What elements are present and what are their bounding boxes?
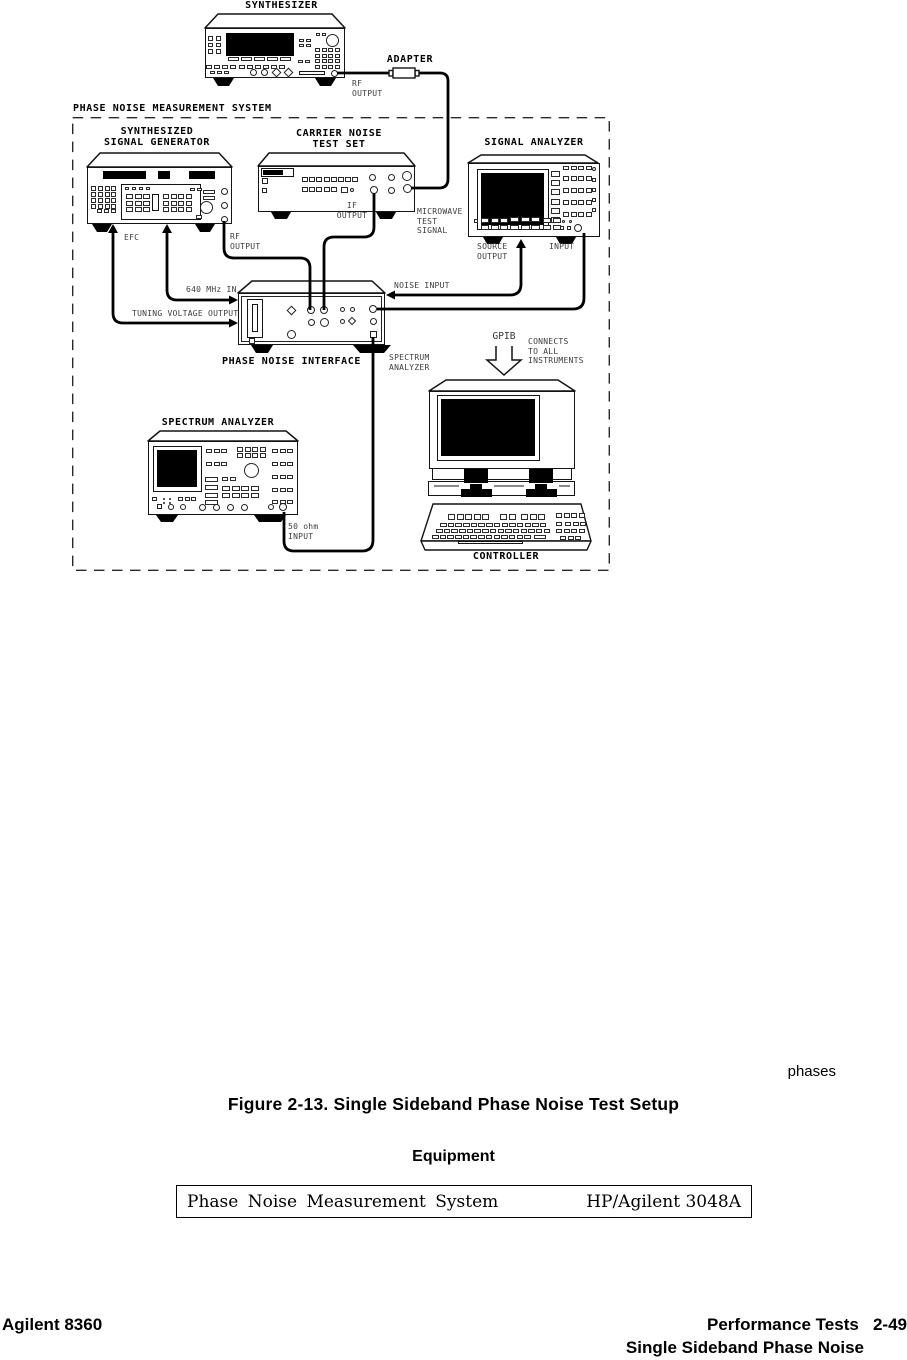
key (260, 447, 266, 452)
connector (169, 502, 171, 504)
key (143, 194, 150, 199)
key (551, 171, 560, 177)
key (486, 523, 493, 527)
key-grid (196, 215, 202, 219)
key (556, 513, 562, 518)
key-grid (126, 194, 150, 212)
connector (168, 504, 174, 510)
key (322, 59, 327, 63)
640mhz-in-label: 640 MHz IN (186, 285, 237, 295)
key (328, 65, 333, 69)
key (178, 497, 183, 501)
synthesizer-title: SYNTHESIZER (205, 0, 358, 11)
key-grid (272, 462, 293, 466)
key (221, 449, 227, 453)
key (205, 485, 218, 490)
connector (320, 306, 328, 314)
key-grid (228, 57, 291, 61)
key (338, 177, 344, 182)
key (280, 449, 286, 453)
key (98, 192, 103, 197)
connector (320, 318, 329, 327)
footer-product: Agilent 8360 (2, 1315, 102, 1335)
key (571, 176, 577, 181)
key (521, 529, 528, 533)
connector (370, 318, 377, 325)
key (322, 48, 327, 52)
key (510, 217, 519, 222)
controller-spacebar (458, 541, 523, 544)
key (436, 529, 443, 533)
connector (200, 201, 213, 214)
key (465, 514, 472, 520)
key (586, 188, 592, 193)
key-grid (208, 36, 221, 54)
system-box-label: PHASE NOISE MEASUREMENT SYSTEM (73, 103, 272, 114)
key (335, 65, 340, 69)
key (146, 187, 150, 190)
key (331, 187, 337, 192)
key (556, 522, 562, 526)
signal-generator-title: SYNTHESIZED SIGNAL GENERATOR (82, 126, 232, 148)
key (563, 200, 569, 205)
key (316, 33, 320, 36)
key (556, 529, 562, 533)
key-grid (190, 188, 202, 191)
key (163, 201, 169, 206)
key (206, 462, 212, 466)
key (208, 43, 213, 48)
key (538, 514, 545, 520)
key (208, 49, 213, 54)
key (563, 212, 569, 217)
key (237, 447, 243, 452)
key (316, 187, 322, 192)
key (91, 192, 96, 197)
if-output-label: IF OUTPUT (322, 201, 382, 220)
key (272, 500, 278, 504)
key (502, 523, 509, 527)
key (98, 186, 103, 191)
key (543, 225, 551, 230)
key (505, 529, 512, 533)
key (309, 187, 315, 192)
connector (569, 220, 572, 223)
connector (574, 224, 582, 232)
key (531, 217, 540, 222)
key (254, 57, 265, 61)
key (280, 57, 291, 61)
key (571, 513, 577, 518)
key (178, 207, 184, 212)
key-grid (206, 462, 227, 466)
key (500, 514, 507, 520)
key (299, 39, 304, 42)
key (216, 43, 221, 48)
key (239, 65, 245, 69)
key (521, 217, 530, 222)
footer-subsection: Single Sideband Phase Noise (626, 1338, 864, 1358)
key-grid (125, 187, 150, 190)
margin-note: phases (788, 1063, 836, 1080)
disk-drive-right (529, 469, 553, 483)
key (126, 194, 133, 199)
key (104, 209, 109, 213)
key (322, 54, 327, 58)
key (287, 488, 293, 492)
key (335, 59, 340, 63)
connector (169, 498, 171, 500)
key (560, 536, 566, 540)
key (315, 48, 320, 52)
equipment-item: Phase Noise Measurement System (187, 1192, 498, 1212)
key (455, 523, 462, 527)
connector (562, 220, 565, 223)
key (252, 447, 258, 452)
key (328, 59, 333, 63)
key (322, 33, 326, 36)
connector (370, 331, 377, 338)
controller-title: CONTROLLER (430, 551, 582, 562)
generator-display-2 (158, 171, 170, 179)
keyboard-keys (500, 514, 516, 520)
key (279, 65, 285, 69)
key-grid (302, 177, 358, 182)
key (444, 529, 451, 533)
key (251, 486, 259, 491)
key (143, 201, 150, 206)
key (111, 192, 116, 197)
keyboard-keys (440, 523, 546, 527)
key (482, 514, 489, 520)
key (135, 201, 142, 206)
key (592, 178, 596, 182)
key-grid (91, 186, 116, 209)
key (135, 194, 142, 199)
key (586, 200, 592, 205)
key (331, 177, 337, 182)
key (178, 201, 184, 206)
key-grid (163, 194, 192, 212)
key (575, 536, 581, 540)
key (315, 65, 320, 69)
key-grid (222, 486, 259, 498)
connector (268, 504, 274, 510)
connector (308, 319, 315, 326)
key (571, 529, 577, 533)
connector (244, 463, 259, 478)
key (592, 208, 596, 212)
key (241, 493, 249, 498)
key (91, 186, 96, 191)
key (287, 475, 293, 479)
key (171, 194, 177, 199)
carrier-display-bar (263, 170, 283, 175)
key (579, 513, 585, 518)
key (571, 166, 577, 170)
key-grid (474, 219, 478, 223)
generator-display-3 (189, 171, 215, 179)
key (126, 207, 133, 212)
key (509, 514, 516, 520)
key (440, 523, 447, 527)
connector (221, 202, 228, 209)
key (478, 523, 485, 527)
key (105, 204, 110, 209)
key-grid (203, 190, 215, 200)
key (481, 218, 489, 223)
controller-screen-bezel (437, 395, 540, 461)
key (517, 535, 524, 539)
synthesizer-display (226, 33, 294, 56)
key (571, 188, 577, 193)
key (524, 535, 531, 539)
key (571, 200, 577, 205)
key (221, 462, 227, 466)
key (163, 194, 169, 199)
key (324, 177, 330, 182)
key (214, 449, 220, 453)
key (287, 449, 293, 453)
key (143, 207, 150, 212)
key (525, 523, 532, 527)
key (91, 204, 96, 209)
key (111, 209, 116, 213)
connector (388, 174, 395, 181)
interface-card-slot (252, 304, 258, 332)
key (302, 177, 308, 182)
key-grid (222, 477, 236, 481)
key (309, 177, 315, 182)
keyboard-keys (560, 536, 581, 540)
key (521, 514, 528, 520)
keyboard-keys (556, 529, 585, 533)
key (447, 535, 454, 539)
key (280, 488, 286, 492)
keyboard-keys (521, 514, 545, 520)
key (448, 514, 455, 520)
figure-caption: Figure 2-13. Single Sideband Phase Noise… (0, 1094, 907, 1115)
key (463, 523, 470, 527)
50ohm-input-label: 50 ohm INPUT (288, 522, 318, 541)
key (186, 207, 192, 212)
key (491, 218, 499, 223)
key (553, 218, 561, 223)
key (578, 200, 584, 205)
connector (221, 188, 228, 195)
keyboard-keys (556, 513, 585, 518)
key (517, 523, 524, 527)
key (217, 71, 222, 74)
connector (262, 188, 267, 193)
key (299, 44, 304, 47)
key (302, 187, 308, 192)
key (196, 215, 202, 219)
key (571, 212, 577, 217)
generator-display-1 (103, 171, 146, 179)
key (298, 60, 303, 63)
key (592, 198, 596, 202)
keyboard-keys (556, 522, 562, 526)
connector (227, 504, 234, 511)
key-grid (481, 218, 508, 230)
connector (403, 184, 412, 193)
key (205, 493, 218, 498)
key (152, 497, 157, 501)
key (206, 449, 212, 453)
key (586, 212, 592, 217)
key (470, 535, 477, 539)
key-grid (510, 217, 540, 230)
efc-label: EFC (124, 233, 139, 243)
key-grid (298, 60, 310, 63)
key-grid (560, 226, 571, 230)
key (214, 65, 220, 69)
key-grid (563, 176, 592, 217)
key (272, 475, 278, 479)
key (222, 477, 228, 481)
keyboard-keys (534, 535, 546, 539)
keyboard-keys (565, 522, 586, 526)
key (501, 535, 508, 539)
connector (350, 188, 354, 192)
disk-drive-right-base (526, 489, 557, 497)
connector (213, 504, 220, 511)
key (206, 65, 212, 69)
key-grid (152, 497, 157, 501)
key (568, 536, 574, 540)
key (316, 177, 322, 182)
key (205, 477, 218, 482)
connector (279, 503, 287, 511)
key (528, 529, 535, 533)
key (185, 497, 190, 501)
key (222, 486, 230, 491)
key (216, 36, 221, 41)
connector (592, 167, 596, 171)
key (532, 523, 539, 527)
key-grid (302, 187, 337, 192)
key (241, 486, 249, 491)
key (578, 166, 584, 170)
key (287, 462, 293, 466)
key (513, 529, 520, 533)
key (98, 204, 103, 209)
key (345, 177, 351, 182)
key (509, 535, 516, 539)
key (255, 65, 261, 69)
key (245, 447, 251, 452)
keyboard-keys (448, 514, 489, 520)
key (203, 190, 215, 194)
key (586, 176, 592, 181)
key (105, 186, 110, 191)
key (521, 225, 530, 230)
key-grid (205, 477, 218, 505)
key (97, 209, 102, 213)
key (578, 176, 584, 181)
key-grid (272, 449, 293, 453)
phase-noise-interface-title: PHASE NOISE INTERFACE (222, 356, 361, 367)
connector (157, 504, 162, 509)
disk-drive-left-base (461, 489, 492, 497)
key (563, 176, 569, 181)
disk-drive-left (464, 469, 488, 483)
spectrum-screen-bezel (153, 446, 202, 492)
key (171, 201, 177, 206)
key-grid (206, 449, 227, 453)
key (210, 71, 215, 74)
key (132, 187, 136, 190)
key (232, 493, 240, 498)
key (494, 523, 501, 527)
key (306, 44, 311, 47)
equipment-model: HP/Agilent 3048A (586, 1192, 741, 1212)
key (260, 453, 266, 458)
key (241, 57, 252, 61)
key-grid (551, 171, 560, 223)
key (448, 523, 455, 527)
key (322, 65, 327, 69)
key (328, 54, 333, 58)
spectrum-analyzer-port-label: SPECTRUM ANALYZER (389, 353, 430, 372)
key (544, 529, 551, 533)
key (125, 187, 129, 190)
key (352, 177, 358, 182)
key-grid (272, 475, 293, 479)
key (498, 529, 505, 533)
key (500, 218, 508, 223)
connector (221, 216, 228, 223)
gpib-label: GPIB (486, 332, 522, 342)
key (214, 462, 220, 466)
key (98, 198, 103, 203)
key (509, 523, 516, 527)
key (328, 48, 333, 52)
synth-rf-output-label: RF OUTPUT (352, 79, 382, 98)
key (551, 208, 560, 214)
key (111, 198, 116, 203)
connector (340, 307, 345, 312)
controller-screen (441, 399, 535, 456)
key (432, 535, 439, 539)
key (564, 529, 570, 533)
connector (287, 330, 296, 339)
connector (163, 502, 165, 504)
key-grid (237, 447, 266, 458)
key (305, 60, 310, 63)
key (287, 500, 293, 504)
key (580, 522, 586, 526)
key-grid (299, 39, 311, 47)
key (272, 488, 278, 492)
gpib-note: CONNECTS TO ALL INSTRUMENTS (528, 337, 584, 366)
key (222, 493, 230, 498)
equipment-heading: Equipment (0, 1148, 907, 1166)
key (267, 57, 278, 61)
key (578, 212, 584, 217)
key (573, 522, 579, 526)
key (280, 462, 286, 466)
key (560, 226, 564, 230)
key (91, 198, 96, 203)
connector (163, 498, 165, 500)
key (530, 514, 537, 520)
key (471, 523, 478, 527)
key (111, 204, 116, 209)
connector (261, 69, 268, 76)
noise-input-label: NOISE INPUT (394, 281, 450, 291)
